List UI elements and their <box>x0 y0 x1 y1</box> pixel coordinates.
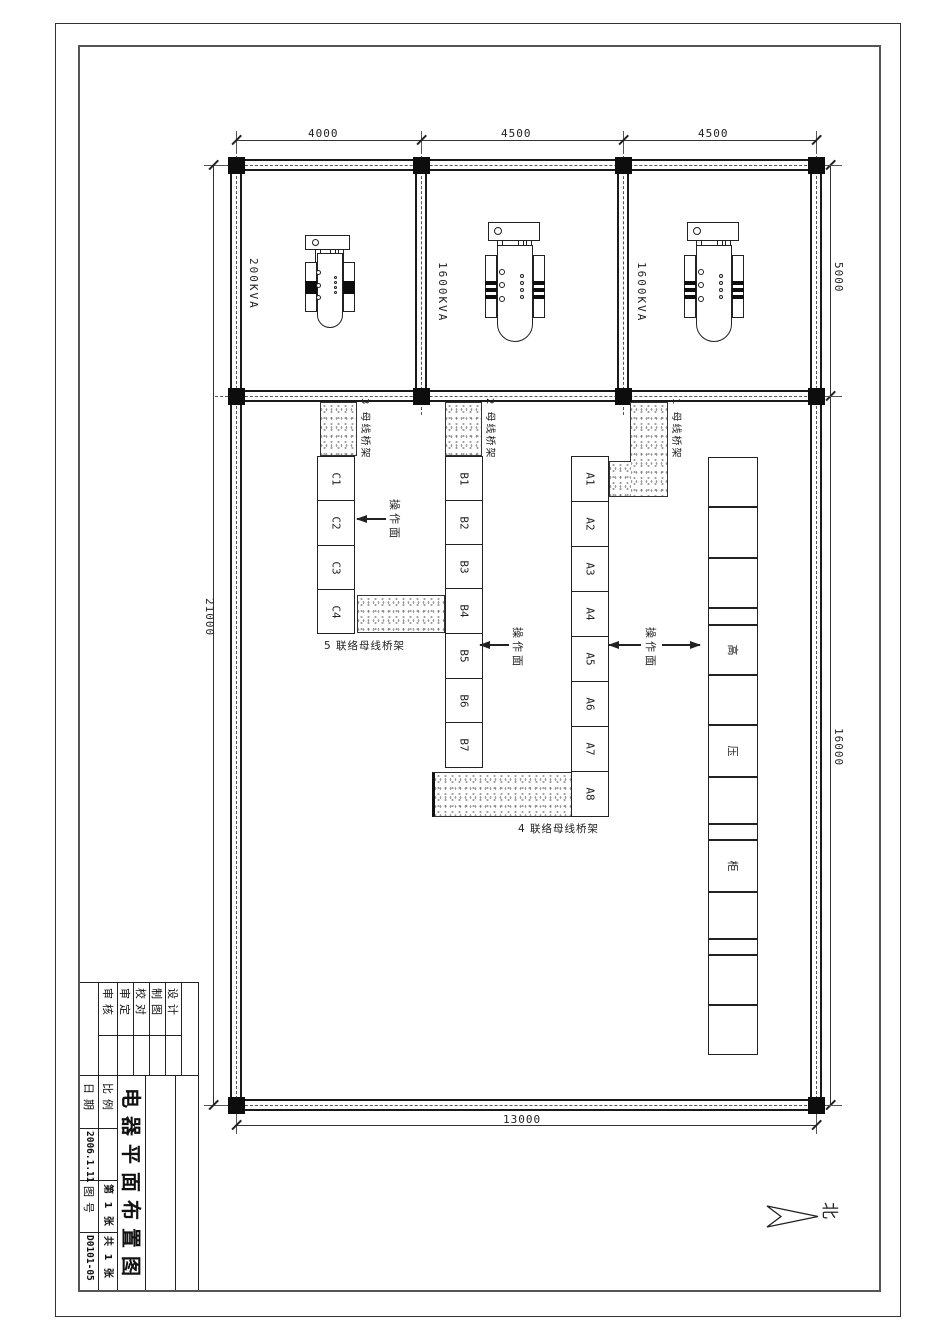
cabinet-B6: B6 <box>445 678 483 723</box>
transformer-rail-right <box>533 255 545 318</box>
busbar-bridge-2-label: 2 母线桥架 <box>484 398 494 460</box>
transformer-dot <box>499 282 505 288</box>
titleblock-line <box>198 982 199 1290</box>
column <box>228 1097 245 1114</box>
transformer-rail-left <box>485 255 497 318</box>
wall-middle <box>228 390 824 402</box>
column <box>413 388 430 405</box>
dim-right-lower: 16000 <box>832 728 845 766</box>
wall-bay-divider-2 <box>617 159 629 402</box>
cabinet-label: B3 <box>458 560 471 573</box>
transformer-band <box>343 281 355 294</box>
arrow-left <box>357 518 386 520</box>
transformer-body <box>317 253 343 328</box>
cabinet-label: A5 <box>584 652 597 665</box>
hv-cabinet: 压 <box>708 725 758 777</box>
transformer-band <box>732 295 744 299</box>
dim-right-upper: 5000 <box>832 262 845 293</box>
hv-cabinet <box>708 824 758 840</box>
transformer-3 <box>684 222 744 342</box>
cabinet-B7: B7 <box>445 722 483 768</box>
cabinet-label: B6 <box>458 694 471 707</box>
titleblock-line <box>145 1075 146 1290</box>
busbar-bridge-2 <box>445 402 482 456</box>
cabinet-label: A1 <box>584 472 597 485</box>
wall-left <box>230 159 242 1111</box>
column <box>615 157 632 174</box>
busbar-bridge-1 <box>630 402 668 497</box>
column <box>808 388 825 405</box>
titleblock-line <box>98 982 99 1290</box>
transformer-dot-small <box>334 286 337 289</box>
hv-cabinet-char: 压 <box>725 746 741 757</box>
transformer-1-label: 200KVA <box>247 258 260 310</box>
column <box>808 157 825 174</box>
north-label: 北 <box>820 1202 837 1219</box>
cabinet-label: C4 <box>330 605 343 618</box>
transformer-dot <box>499 296 505 302</box>
drawing-sheet: 4000 4500 4500 21000 5000 16000 13000 20… <box>0 0 950 1344</box>
transformer-body <box>497 245 533 342</box>
north-arrow-icon <box>766 1205 820 1228</box>
cabinet-label: A6 <box>584 697 597 710</box>
transformer-band <box>485 281 497 285</box>
titleblock-design: 设计 <box>167 988 178 1020</box>
hv-cabinet <box>708 608 758 625</box>
titleblock-review: 审核 <box>102 988 113 1020</box>
cabinet-C3: C3 <box>317 545 355 590</box>
operation-face-label-a: 操作面 <box>645 627 656 669</box>
transformer-dot <box>698 282 704 288</box>
transformer-dot-small <box>719 295 723 299</box>
hv-cabinet <box>708 675 758 725</box>
titleblock-drawing-no-value: D0101-05 <box>84 1235 95 1281</box>
column <box>413 157 430 174</box>
cabinet-label: A8 <box>584 787 597 800</box>
transformer-3-label: 1600KVA <box>635 262 648 322</box>
transformer-dot-small <box>334 291 337 294</box>
titleblock-sheet-index: 第 1 张 <box>102 1184 112 1228</box>
cabinet-C1: C1 <box>317 456 355 501</box>
transformer-dot <box>698 269 704 275</box>
transformer-dot-small <box>520 288 524 292</box>
cabinet-label: C3 <box>330 561 343 574</box>
titleblock-line <box>98 1035 181 1036</box>
titleblock-sheet-total: 共 1 张 <box>102 1236 112 1280</box>
cabinet-B3: B3 <box>445 544 483 589</box>
cabinet-label: B4 <box>458 604 471 617</box>
cabinet-A2: A2 <box>571 501 609 547</box>
busbar-bridge-1-extension <box>609 461 631 497</box>
cabinet-B2: B2 <box>445 500 483 545</box>
transformer-dot <box>316 283 321 288</box>
hv-cabinet <box>708 457 758 507</box>
dim-left: 21000 <box>203 598 216 636</box>
cabinet-label: B5 <box>458 649 471 662</box>
hv-cabinet <box>708 1005 758 1055</box>
cabinet-B1: B1 <box>445 456 483 501</box>
transformer-dot <box>698 296 704 302</box>
cabinet-A3: A3 <box>571 546 609 592</box>
transformer-dot-small <box>334 281 337 284</box>
titleblock-line <box>181 982 182 1075</box>
hv-cabinet <box>708 558 758 608</box>
cabinet-label: A3 <box>584 562 597 575</box>
arrow-left <box>609 644 641 646</box>
dim-line-right <box>830 165 831 1105</box>
transformer-body <box>696 245 732 342</box>
dim-bottom: 13000 <box>503 1113 541 1126</box>
hv-cabinet <box>708 892 758 939</box>
cabinet-A1: A1 <box>571 456 609 502</box>
transformer-band <box>533 295 545 299</box>
transformer-rail-right <box>732 255 744 318</box>
titleblock-drafting: 制图 <box>151 988 162 1020</box>
cabinet-B5: B5 <box>445 633 483 679</box>
transformer-rail-left <box>305 262 317 312</box>
dim-top-3: 4500 <box>698 127 729 140</box>
transformer-port <box>494 227 502 235</box>
cabinet-A6: A6 <box>571 681 609 727</box>
hv-cabinet <box>708 955 758 1005</box>
cabinet-label: C1 <box>330 472 343 485</box>
titleblock-drawing-no-label: 图号 <box>83 1186 94 1218</box>
transformer-band <box>684 295 696 299</box>
cabinet-C2: C2 <box>317 500 355 546</box>
cabinet-label: A7 <box>584 742 597 755</box>
titleblock-proofread: 校对 <box>135 988 146 1020</box>
transformer-dot-small <box>520 281 524 285</box>
hv-cabinet-char: 柜 <box>725 861 741 872</box>
transformer-dot-small <box>719 274 723 278</box>
transformer-band <box>533 288 545 292</box>
wall-top <box>228 159 824 171</box>
transformer-band <box>684 288 696 292</box>
cabinet-A8: A8 <box>571 771 609 817</box>
cabinet-label: B7 <box>458 738 471 751</box>
tie-busbar-bridge-5-label: 5 联络母线桥架 <box>324 638 405 653</box>
hv-cabinet: 高 <box>708 625 758 675</box>
transformer-port <box>312 239 319 246</box>
dim-top-1: 4000 <box>308 127 339 140</box>
transformer-port <box>693 227 701 235</box>
cabinet-A5: A5 <box>571 636 609 682</box>
column <box>228 157 245 174</box>
dim-line-top <box>236 140 816 141</box>
cabinet-label: C2 <box>330 516 343 529</box>
cabinet-label: A4 <box>584 607 597 620</box>
operation-face-label-c: 操作面 <box>389 499 400 541</box>
titleblock-scale-label: 比例 <box>102 1083 113 1115</box>
transformer-band <box>533 281 545 285</box>
transformer-dot-small <box>719 281 723 285</box>
transformer-dot <box>316 295 321 300</box>
cabinet-label: B1 <box>458 472 471 485</box>
transformer-2 <box>485 222 545 342</box>
tie-busbar-bridge-5 <box>357 595 445 633</box>
wall-bay-divider-1 <box>415 159 427 402</box>
tie-busbar-bridge-4 <box>432 772 573 817</box>
dim-top-2: 4500 <box>501 127 532 140</box>
wall-right <box>810 159 822 1111</box>
busbar-bridge-1-label: 1 母线桥架 <box>670 398 680 460</box>
hv-cabinet-char: 高 <box>725 645 741 656</box>
transformer-rail-left <box>684 255 696 318</box>
cabinet-B4: B4 <box>445 588 483 634</box>
hv-cabinet <box>708 939 758 955</box>
transformer-band <box>732 288 744 292</box>
transformer-band <box>732 281 744 285</box>
transformer-band <box>485 288 497 292</box>
tie-busbar-bridge-4-label: 4 联络母线桥架 <box>518 821 599 836</box>
transformer-dot-small <box>719 288 723 292</box>
transformer-dot-small <box>520 295 524 299</box>
transformer-band <box>305 281 317 294</box>
transformer-dot-small <box>334 276 337 279</box>
drawing-title: 电器平面布置图 <box>121 1088 141 1284</box>
transformer-2-label: 1600KVA <box>436 262 449 322</box>
column <box>228 388 245 405</box>
transformer-band <box>684 281 696 285</box>
busbar-bridge-3 <box>320 402 357 456</box>
titleblock-date-label: 日期 <box>83 1083 94 1115</box>
cabinet-label: A2 <box>584 517 597 530</box>
cabinet-label: B2 <box>458 516 471 529</box>
titleblock-date-value: 2006.1.11 <box>84 1131 95 1182</box>
arrow-left <box>480 644 509 646</box>
cabinet-C4: C4 <box>317 589 355 634</box>
column <box>808 1097 825 1114</box>
arrow-right <box>662 644 700 646</box>
titleblock-line <box>117 982 118 1290</box>
transformer-1 <box>305 235 355 330</box>
busbar-bridge-3-label: 3 母线桥架 <box>359 398 369 460</box>
transformer-dot-small <box>520 274 524 278</box>
transformer-dot <box>499 269 505 275</box>
cabinet-A7: A7 <box>571 726 609 772</box>
wall-bottom <box>228 1099 824 1111</box>
titleblock-approve: 审定 <box>119 988 130 1020</box>
transformer-rail-right <box>343 262 355 312</box>
transformer-dot <box>316 270 321 275</box>
operation-face-label-b: 操作面 <box>512 627 523 669</box>
transformer-band <box>485 295 497 299</box>
cabinet-A4: A4 <box>571 591 609 637</box>
hv-cabinet <box>708 777 758 824</box>
titleblock-line <box>175 1075 176 1290</box>
hv-cabinet <box>708 507 758 558</box>
hv-cabinet: 柜 <box>708 840 758 892</box>
